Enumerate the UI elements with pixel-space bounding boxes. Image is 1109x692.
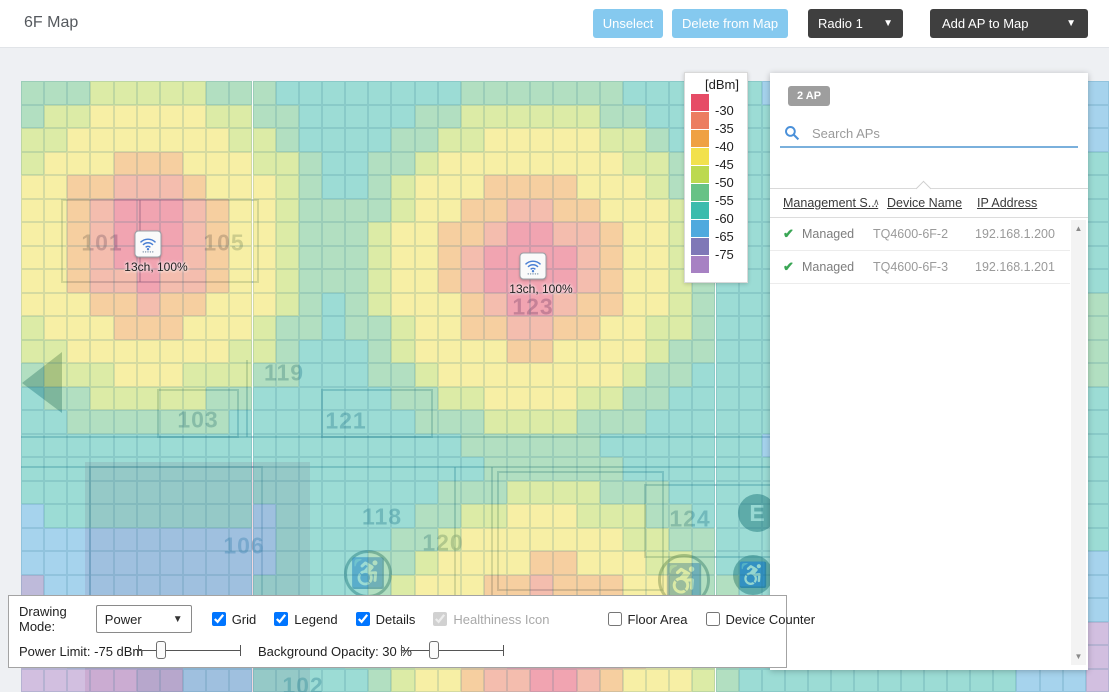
checkbox-input[interactable] xyxy=(706,612,720,626)
legend-entry xyxy=(691,256,741,273)
legend-swatch xyxy=(691,130,709,147)
chevron-down-icon: ▼ xyxy=(173,614,183,625)
legend-entry: -45 xyxy=(691,148,741,165)
radio-select-dropdown[interactable]: Radio 1 ▼ xyxy=(808,9,903,38)
drawing-controls-panel: Drawing Mode: Power ▼ GridLegendDetailsH… xyxy=(8,595,787,668)
legend-swatch xyxy=(691,148,709,165)
chevron-down-icon: ▼ xyxy=(1066,18,1076,29)
checkbox-input[interactable] xyxy=(608,612,622,626)
checkbox-input[interactable] xyxy=(212,612,226,626)
background-opacity-slider[interactable] xyxy=(401,640,504,660)
table-row[interactable]: ✔ManagedTQ4600-6F-2192.168.1.200 xyxy=(770,218,1070,251)
power-limit-label: Power Limit: -75 dBm xyxy=(19,644,143,659)
checkbox-label: Details xyxy=(376,612,416,627)
ap-list-scrollbar[interactable]: ▲ ▼ xyxy=(1071,220,1086,665)
checkbox-label: Grid xyxy=(232,612,257,627)
delete-from-map-button[interactable]: Delete from Map xyxy=(672,9,788,38)
legend-swatch xyxy=(691,238,709,255)
column-device-name[interactable]: Device Name xyxy=(887,196,962,210)
device-name: TQ4600-6F-2 xyxy=(873,227,948,241)
legend-entry: -35 xyxy=(691,112,741,129)
checkbox-input[interactable] xyxy=(274,612,288,626)
top-bar: 6F Map Unselect Delete from Map Radio 1 … xyxy=(0,0,1109,48)
management-status: Managed xyxy=(802,260,854,274)
access-point-icon[interactable] xyxy=(520,253,547,280)
legend-panel: [dBm] -30-35-40-45-50-55-60-65-75 xyxy=(684,72,748,283)
checkbox-grid[interactable]: Grid xyxy=(212,612,257,627)
page-title: 6F Map xyxy=(24,14,78,32)
legend-swatch xyxy=(691,202,709,219)
search-icon xyxy=(784,125,800,141)
checkbox-input[interactable] xyxy=(356,612,370,626)
legend-scale: -30-35-40-45-50-55-60-65-75 xyxy=(691,94,741,273)
legend-entry: -65 xyxy=(691,220,741,237)
column-management-status[interactable]: Management S... xyxy=(783,196,878,210)
ip-address: 192.168.1.200 xyxy=(975,227,1055,241)
ap-channel-label: 13ch, 100% xyxy=(124,260,187,274)
drawing-mode-row: Drawing Mode: Power ▼ GridLegendDetailsH… xyxy=(19,604,833,634)
overlay-checkboxes: GridLegendDetailsHealthiness IconFloor A… xyxy=(212,612,833,627)
power-limit-slider[interactable] xyxy=(138,640,241,660)
checkbox-details[interactable]: Details xyxy=(356,612,416,627)
legend-swatch xyxy=(691,94,709,111)
legend-swatch xyxy=(691,112,709,129)
search-underline xyxy=(780,146,1078,148)
access-point-icon[interactable] xyxy=(135,231,162,258)
ap-count-badge: 2 AP xyxy=(788,86,830,106)
managed-check-icon: ✔ xyxy=(783,259,794,275)
legend-swatch xyxy=(691,166,709,183)
checkbox-label: Floor Area xyxy=(628,612,688,627)
power-limit-slider-thumb[interactable] xyxy=(156,641,166,659)
unselect-button[interactable]: Unselect xyxy=(593,9,663,38)
search-input[interactable] xyxy=(810,121,1070,145)
legend-entry: -30 xyxy=(691,94,741,111)
search-row xyxy=(780,121,1078,147)
checkbox-floor-area[interactable]: Floor Area xyxy=(608,612,688,627)
checkbox-device-counter[interactable]: Device Counter xyxy=(706,612,816,627)
legend-entry: -60 xyxy=(691,202,741,219)
ap-list-panel: 2 AP Management S... ∧ Device Name IP Ad… xyxy=(770,73,1088,670)
checkbox-healthiness-icon[interactable]: Healthiness Icon xyxy=(433,612,549,627)
column-ip-address[interactable]: IP Address xyxy=(977,196,1037,210)
legend-swatch xyxy=(691,256,709,273)
scroll-up-icon[interactable]: ▲ xyxy=(1071,224,1086,233)
drawing-mode-value: Power xyxy=(105,612,169,627)
background-opacity-slider-thumb[interactable] xyxy=(429,641,439,659)
legend-entry: -75 xyxy=(691,238,741,255)
header-actions: Unselect Delete from Map Radio 1 ▼ Add A… xyxy=(593,9,1088,38)
device-name: TQ4600-6F-3 xyxy=(873,260,948,274)
ap-table-body: ✔ManagedTQ4600-6F-2192.168.1.200✔Managed… xyxy=(770,218,1070,284)
checkbox-label: Legend xyxy=(294,612,337,627)
legend-title: [dBm] xyxy=(691,77,741,92)
ip-address: 192.168.1.201 xyxy=(975,260,1055,274)
add-ap-to-map-dropdown[interactable]: Add AP to Map ▼ xyxy=(930,9,1088,38)
chevron-down-icon: ▼ xyxy=(883,18,893,29)
checkbox-label: Device Counter xyxy=(726,612,816,627)
legend-swatch xyxy=(691,220,709,237)
managed-check-icon: ✔ xyxy=(783,226,794,242)
table-header: Management S... ∧ Device Name IP Address xyxy=(770,188,1088,218)
ap-channel-label: 13ch, 100% xyxy=(509,282,572,296)
management-status: Managed xyxy=(802,227,854,241)
table-row[interactable]: ✔ManagedTQ4600-6F-3192.168.1.201 xyxy=(770,251,1070,284)
legend-entry: -55 xyxy=(691,184,741,201)
sort-asc-icon: ∧ xyxy=(873,197,880,208)
checkbox-legend[interactable]: Legend xyxy=(274,612,337,627)
background-opacity-label: Background Opacity: 30 % xyxy=(258,644,412,659)
sliders-row: Power Limit: -75 dBm Background Opacity:… xyxy=(19,640,779,664)
checkbox-label: Healthiness Icon xyxy=(453,612,549,627)
legend-swatch xyxy=(691,184,709,201)
checkbox-input[interactable] xyxy=(433,612,447,626)
drawing-mode-label: Drawing Mode: xyxy=(19,604,88,634)
legend-entry: -50 xyxy=(691,166,741,183)
drawing-mode-select[interactable]: Power ▼ xyxy=(96,605,192,633)
legend-entry: -40 xyxy=(691,130,741,147)
panel-notch xyxy=(916,181,932,197)
scroll-down-icon[interactable]: ▼ xyxy=(1071,652,1086,661)
